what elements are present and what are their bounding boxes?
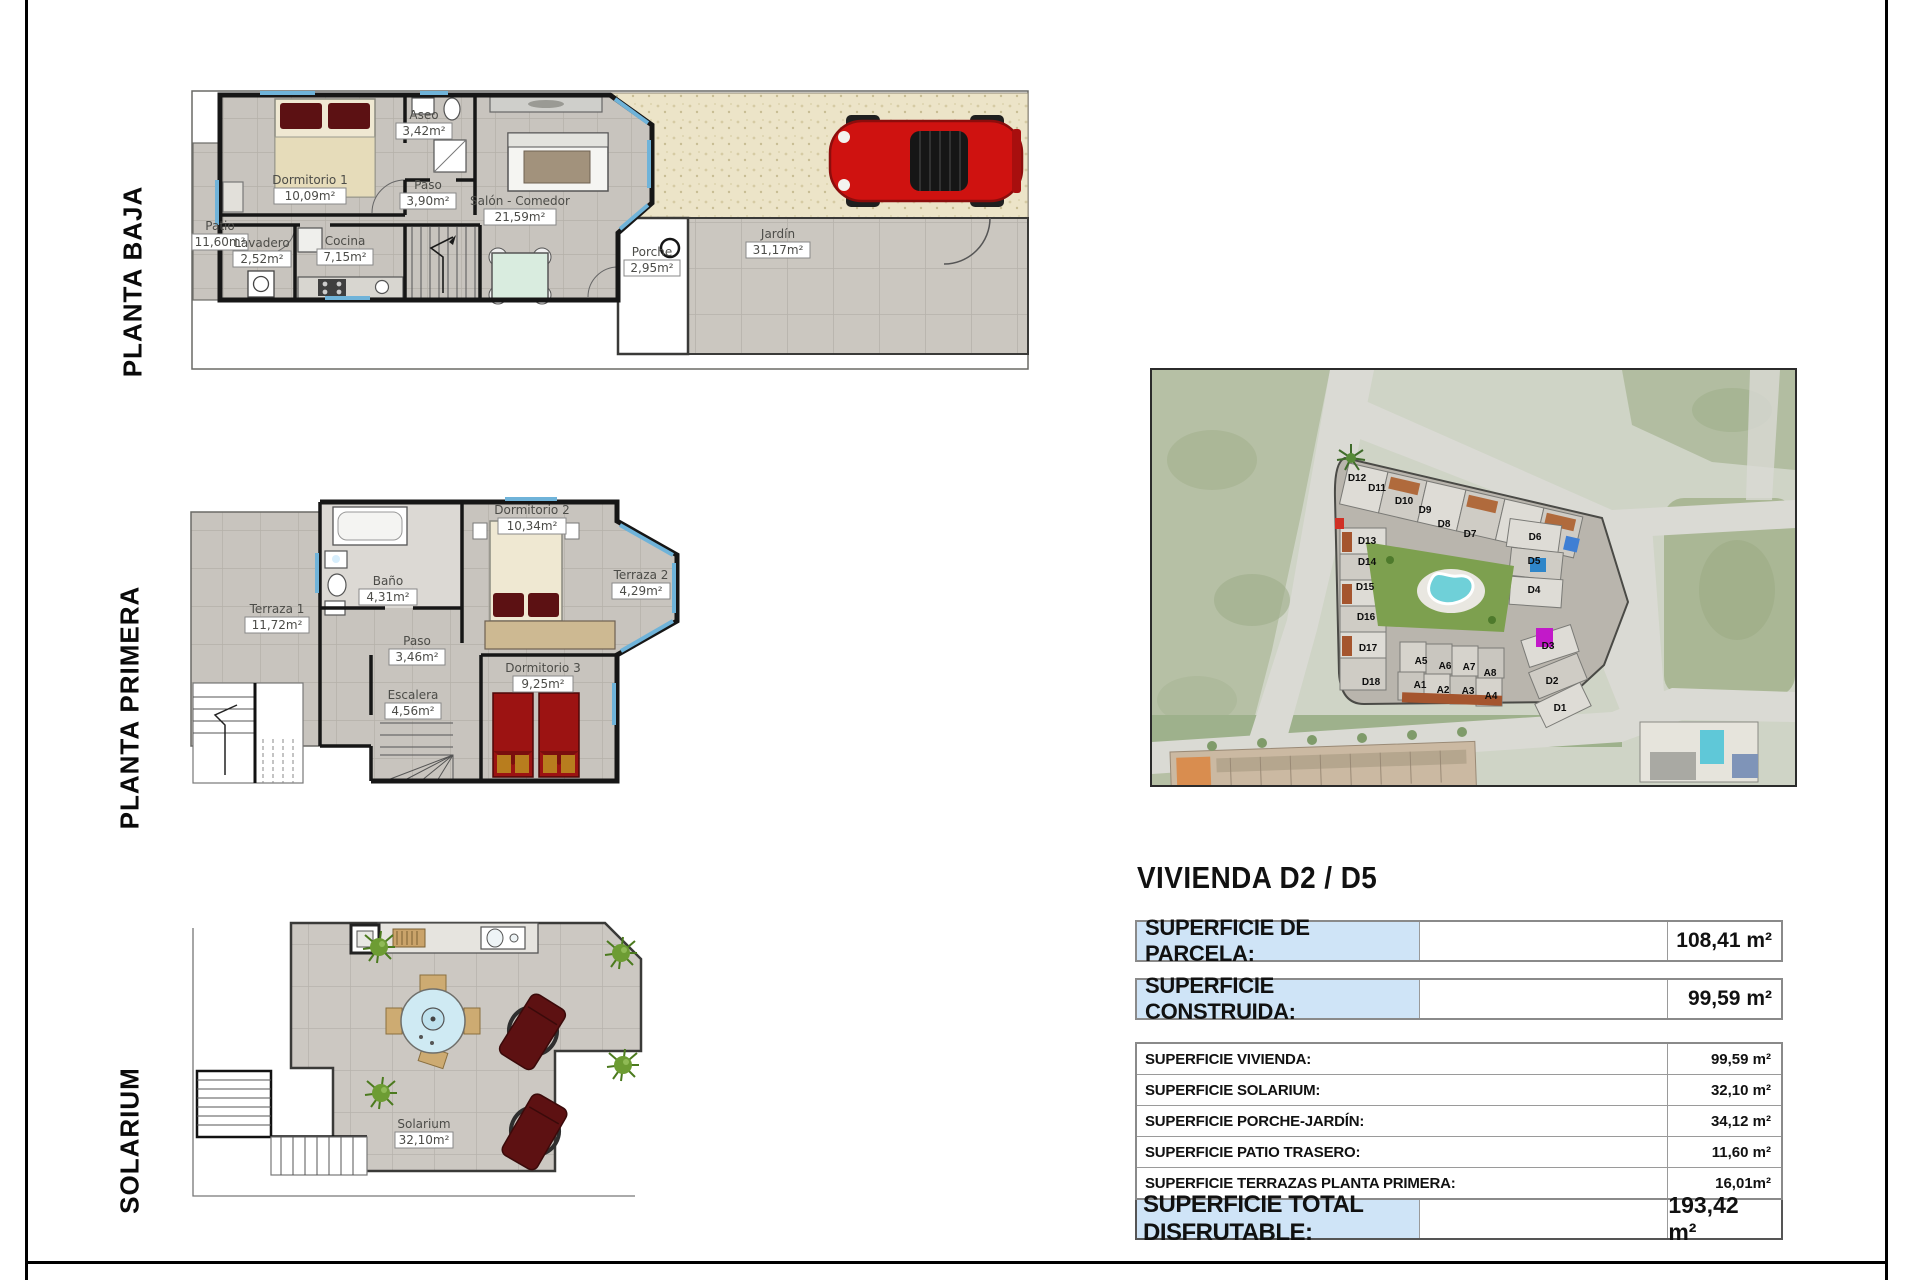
summary-row-total: SUPERFICIE TOTAL DISFRUTABLE: 193,42 m²: [1135, 1200, 1783, 1240]
row-label: SUPERFICIE CONSTRUIDA:: [1137, 980, 1420, 1018]
room-labels-solarium: Solarium 32,10m²: [395, 1117, 453, 1148]
room-name: Baño: [373, 574, 404, 588]
page-border-right: [1885, 0, 1888, 1280]
svg-text:D18: D18: [1362, 677, 1381, 688]
row-spacer: [1420, 922, 1668, 960]
row-value: 32,10 m²: [1668, 1075, 1781, 1105]
room-name: Escalera: [388, 688, 439, 702]
row-spacer: [1420, 980, 1668, 1018]
svg-text:D11: D11: [1368, 483, 1386, 494]
table-row: SUPERFICIE PATIO TRASERO: 11,60 m²: [1137, 1137, 1781, 1168]
svg-text:A6: A6: [1439, 661, 1452, 672]
room-name: Terraza 1: [249, 602, 305, 616]
wardrobe: [223, 182, 243, 212]
detail-table: SUPERFICIE VIVIENDA: 99,59 m² SUPERFICIE…: [1135, 1042, 1783, 1200]
room-area: 10,09m²: [285, 189, 336, 203]
row-label: SUPERFICIE VIVIENDA:: [1137, 1044, 1668, 1074]
room-area: 31,17m²: [753, 243, 804, 257]
room-name: Paso: [414, 178, 442, 192]
room-name: Terraza 2: [613, 568, 669, 582]
room-area: 2,52m²: [240, 252, 283, 266]
row-label: SUPERFICIE DE PARCELA:: [1137, 922, 1420, 960]
page-border-bottom: [25, 1261, 1888, 1264]
svg-text:A2: A2: [1437, 685, 1450, 696]
room-area: 3,46m²: [395, 650, 438, 664]
row-value: 193,42 m²: [1668, 1200, 1781, 1238]
svg-text:D1: D1: [1554, 703, 1567, 714]
dining-table: [489, 248, 551, 304]
svg-text:D16: D16: [1357, 612, 1376, 623]
svg-text:A4: A4: [1485, 691, 1498, 702]
svg-text:D13: D13: [1358, 536, 1377, 547]
solarium-floor: [291, 923, 641, 1171]
garden-floor: [688, 218, 1028, 354]
car: [830, 115, 1022, 207]
svg-text:D8: D8: [1438, 519, 1451, 530]
svg-text:A1: A1: [1414, 680, 1427, 691]
room-name: Cocina: [325, 234, 366, 248]
bottom-right-buildings: [1640, 722, 1758, 782]
floor-title-solarium: SOLARIUM: [115, 1011, 146, 1271]
table-row: SUPERFICIE PORCHE-JARDÍN: 34,12 m²: [1137, 1106, 1781, 1137]
neighbor-pool: [1700, 730, 1724, 764]
row-label: SUPERFICIE SOLARIUM:: [1137, 1075, 1668, 1105]
row-value: 108,41 m²: [1668, 922, 1781, 960]
row-value: 34,12 m²: [1668, 1106, 1781, 1136]
room-area: 3,90m²: [406, 194, 449, 208]
room-name: Solarium: [397, 1117, 450, 1131]
room-name: Aseo: [409, 108, 438, 122]
room-area: 2,95m²: [630, 261, 673, 275]
svg-text:D2: D2: [1546, 676, 1559, 687]
svg-text:D5: D5: [1528, 556, 1541, 567]
floor-title-planta-baja: PLANTA BAJA: [118, 152, 149, 412]
table-row: SUPERFICIE SOLARIUM: 32,10 m²: [1137, 1075, 1781, 1106]
brochure-page: PLANTA BAJA PLANTA PRIMERA SOLARIUM: [0, 0, 1920, 1280]
svg-text:D6: D6: [1529, 532, 1542, 543]
sofa: [508, 133, 608, 191]
room-area: 4,29m²: [619, 584, 662, 598]
svg-text:D15: D15: [1356, 582, 1375, 593]
surface-summary-panel: VIVIENDA D2 / D5 SUPERFICIE DE PARCELA: …: [1135, 860, 1783, 1240]
room-area: 32,10m²: [399, 1133, 450, 1147]
room-area: 4,31m²: [366, 590, 409, 604]
svg-text:D10: D10: [1395, 496, 1414, 507]
svg-text:D7: D7: [1464, 529, 1477, 540]
svg-text:D17: D17: [1359, 643, 1378, 654]
aerial-site-photo: D12 D11 D10 D9 D8 D7 D13 D14 D15 D16 D17…: [1150, 368, 1797, 787]
room-area: 3,42m²: [402, 124, 445, 138]
svg-text:A5: A5: [1415, 656, 1428, 667]
room-area: 7,15m²: [323, 250, 366, 264]
room-area: 4,56m²: [391, 704, 434, 718]
svg-text:D4: D4: [1528, 585, 1541, 596]
svg-text:D9: D9: [1419, 505, 1432, 516]
svg-text:D12: D12: [1348, 473, 1367, 484]
row-label: SUPERFICIE PATIO TRASERO:: [1137, 1137, 1668, 1167]
svg-text:D3: D3: [1542, 641, 1555, 652]
row-label: SUPERFICIE TOTAL DISFRUTABLE:: [1137, 1200, 1420, 1238]
wardrobe: [485, 621, 615, 649]
tv-unit: [490, 97, 602, 112]
floor-plan-planta-primera: Terraza 1 11,72m² Baño 4,31m² Dormitorio…: [185, 493, 680, 788]
dwelling-title: VIVIENDA D2 / D5: [1137, 860, 1718, 896]
svg-text:A7: A7: [1463, 662, 1476, 673]
floor-plan-planta-baja: Dormitorio 1 10,09m² Aseo 3,42m² Paso 3,…: [190, 85, 1030, 380]
room-name: Jardín: [760, 227, 795, 241]
row-label: SUPERFICIE PORCHE-JARDÍN:: [1137, 1106, 1668, 1136]
room-area: 10,34m²: [507, 519, 558, 533]
red-marker: [1335, 518, 1344, 529]
room-name: Salón - Comedor: [470, 194, 570, 208]
room-name: Dormitorio 3: [505, 661, 580, 675]
summary-row-construida: SUPERFICIE CONSTRUIDA: 99,59 m²: [1135, 978, 1783, 1020]
summary-row-parcela: SUPERFICIE DE PARCELA: 108,41 m²: [1135, 920, 1783, 962]
row-value: 99,59 m²: [1668, 1044, 1781, 1074]
svg-text:D14: D14: [1358, 557, 1377, 568]
room-name: Paso: [403, 634, 431, 648]
room-area: 21,59m²: [495, 210, 546, 224]
floor-plan-solarium: Solarium 32,10m²: [183, 903, 645, 1203]
row-value: 11,60 m²: [1668, 1137, 1781, 1167]
room-name: Patio: [205, 219, 234, 233]
svg-text:A8: A8: [1484, 668, 1497, 679]
room-area: 9,25m²: [521, 677, 564, 691]
room-name: Porche: [632, 245, 672, 259]
washing-machine: [248, 271, 274, 297]
room-name: Lavadero: [234, 236, 290, 250]
floor-title-planta-primera: PLANTA PRIMERA: [115, 578, 146, 838]
row-value: 99,59 m²: [1668, 980, 1781, 1018]
external-stair: [193, 683, 303, 783]
room-name: Dormitorio 2: [494, 503, 569, 517]
svg-text:A3: A3: [1462, 686, 1475, 697]
row-spacer: [1420, 1200, 1668, 1238]
page-border-left: [25, 0, 28, 1280]
room-name: Dormitorio 1: [272, 173, 347, 187]
table-row: SUPERFICIE VIVIENDA: 99,59 m²: [1137, 1044, 1781, 1075]
porch-floor: [618, 218, 688, 354]
outdoor-kitchen: [378, 923, 538, 953]
room-area: 11,72m²: [252, 618, 303, 632]
